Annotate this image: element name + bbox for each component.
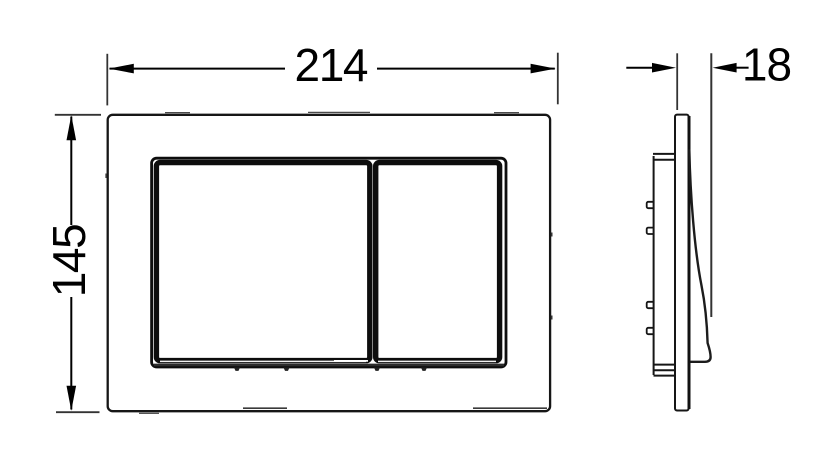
svg-text:18: 18 (742, 39, 791, 91)
svg-text:214: 214 (295, 39, 368, 91)
svg-text:145: 145 (43, 225, 95, 298)
